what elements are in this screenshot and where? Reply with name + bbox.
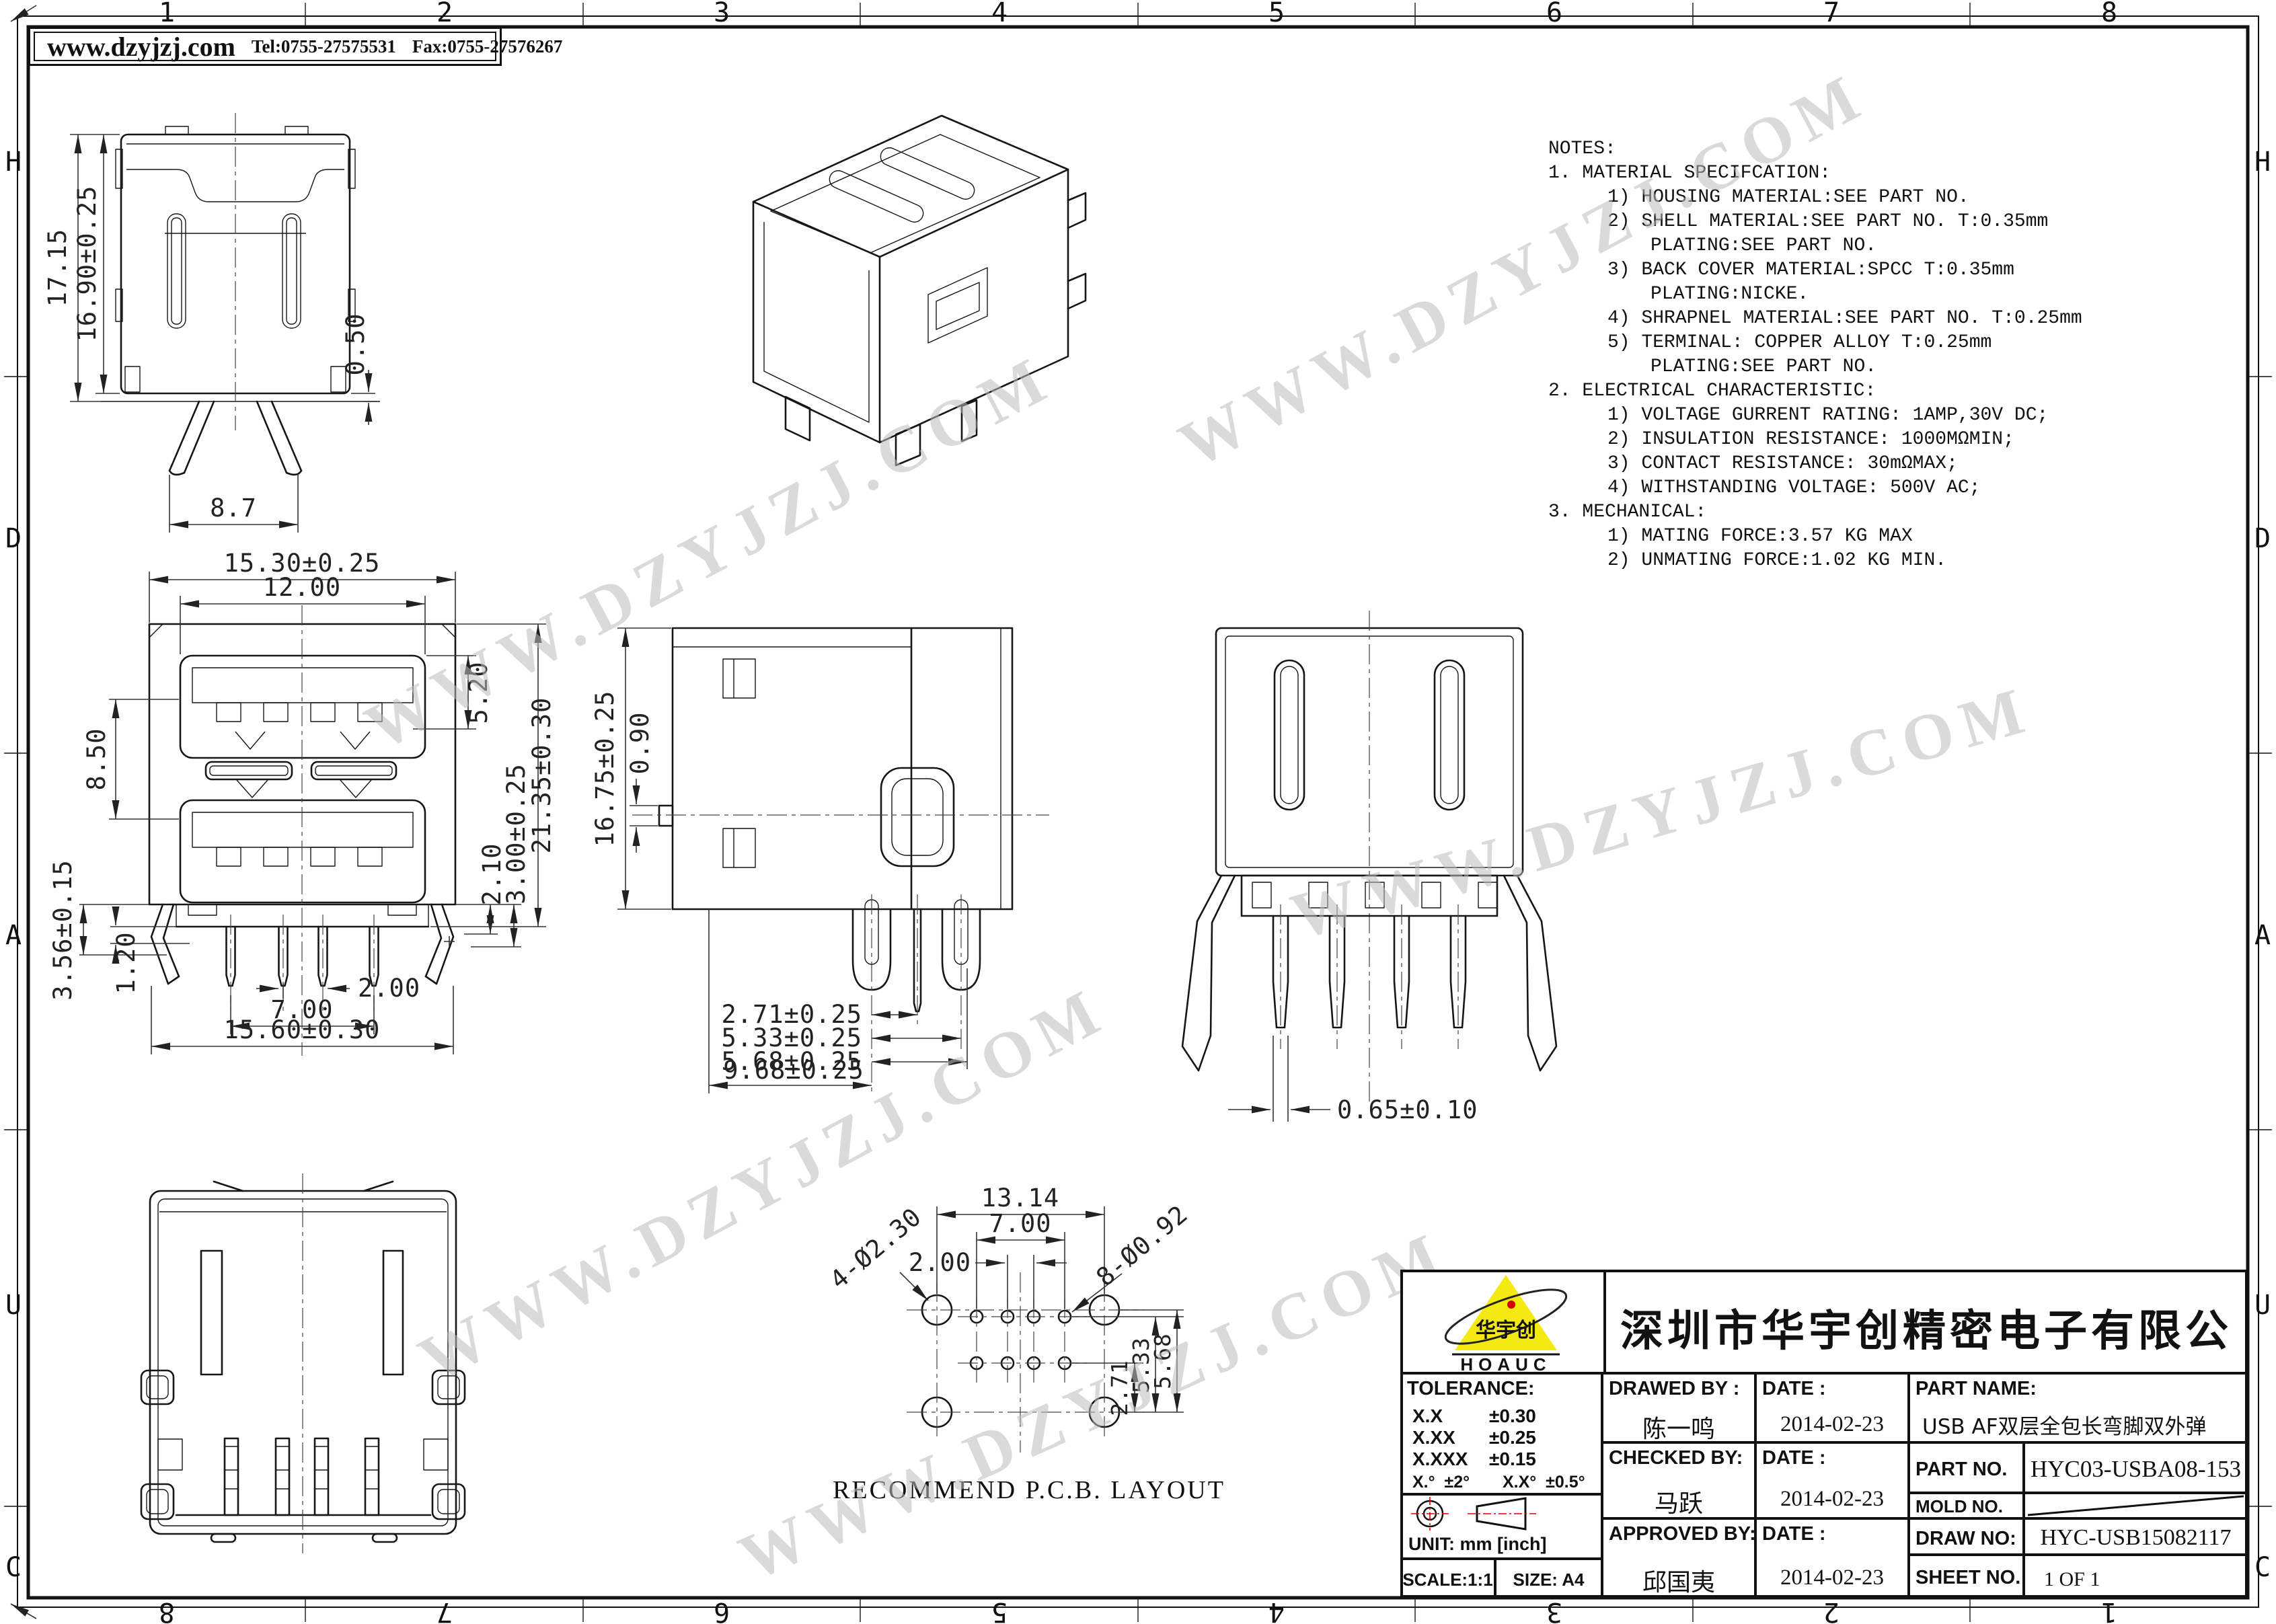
dim-2-00: 2.00 bbox=[358, 974, 420, 1003]
approved-date-cell: DATE : 2014-02-23 bbox=[1755, 1518, 1909, 1598]
date-label: DATE : bbox=[1762, 1378, 1826, 1400]
draw-no-label: DRAW NO: bbox=[1915, 1528, 2016, 1550]
first-angle-projection-icon bbox=[1402, 1496, 1601, 1532]
dim-15-60: 15.60±0.30 bbox=[224, 1015, 381, 1044]
dim-21-35: 21.35±0.30 bbox=[527, 697, 556, 854]
approved-by-name: 邱国夷 bbox=[1603, 1563, 1754, 1598]
view-side: 16.75±0.25 0.90 2.71±0.25 5.33±0.25 5.68… bbox=[591, 628, 1049, 1095]
notes: NOTES: 1. MATERIAL SPECIFCATION: 1) HOUS… bbox=[1548, 137, 2248, 573]
view-pcb-layout: 13.14 7.00 2.00 4-Ø2.30 8-Ø0.92 2.71 5.3… bbox=[825, 1184, 1225, 1504]
unit-cell: UNIT: mm [inch] bbox=[1400, 1494, 1602, 1559]
zone-left: C bbox=[5, 1552, 22, 1583]
blank-slash-icon bbox=[2025, 1494, 2246, 1517]
note-line: PLATING:SEE PART NO. bbox=[1548, 234, 2248, 258]
draw-no-value: HYC-USB15082117 bbox=[2025, 1525, 2246, 1551]
dim-8-7: 8.7 bbox=[210, 494, 257, 523]
note-line: PLATING:NICKE. bbox=[1548, 282, 2248, 307]
checked-by-label: CHECKED BY: bbox=[1609, 1447, 1743, 1469]
website-text: www.dzyjzj.com bbox=[47, 31, 235, 63]
zone-right: D bbox=[2254, 523, 2271, 554]
drawed-date-cell: DATE : 2014-02-23 bbox=[1755, 1373, 1909, 1442]
tol-angle: X.° ±2° bbox=[1412, 1473, 1470, 1492]
header-box: www.dzyjzj.com Tel:0755-27575531 Fax:075… bbox=[28, 27, 502, 66]
dim-0-50: 0.50 bbox=[341, 313, 370, 375]
corner-mark-icon bbox=[11, 5, 36, 22]
dim-5-68: 5.68 bbox=[1149, 1333, 1176, 1389]
note-line: 2) SHELL MATERIAL:SEE PART NO. T:0.35mm bbox=[1548, 210, 2248, 234]
note-line: 4) WITHSTANDING VOLTAGE: 500V AC; bbox=[1548, 476, 2248, 500]
sheet-no-value-cell: 1 OF 1 bbox=[2024, 1555, 2248, 1598]
date-label: DATE : bbox=[1762, 1447, 1826, 1469]
dim-2-00: 2.00 bbox=[909, 1248, 971, 1277]
tol-val: ±0.15 bbox=[1489, 1448, 1536, 1470]
dim-16-90: 16.90±0.25 bbox=[73, 186, 102, 342]
zone-top-4: 4 bbox=[991, 0, 1008, 28]
zone-right: U bbox=[2254, 1290, 2271, 1321]
dim-12-00: 12.00 bbox=[263, 573, 341, 602]
note-line: 3) BACK COVER MATERIAL:SPCC T:0.35mm bbox=[1548, 258, 2248, 282]
part-no-label-cell: PART NO. bbox=[1909, 1442, 2024, 1493]
dim-8-50: 8.50 bbox=[82, 728, 111, 790]
note-line: 2) INSULATION RESISTANCE: 1000MΩMIN; bbox=[1548, 428, 2248, 452]
zone-top-3: 3 bbox=[714, 0, 730, 28]
zone-bottom: 7 bbox=[437, 1596, 453, 1624]
part-no-value: HYC03-USBA08-153 bbox=[2025, 1456, 2246, 1483]
zone-top-6: 6 bbox=[1546, 0, 1562, 28]
note-line: 1) VOLTAGE GURRENT RATING: 1AMP,30V DC; bbox=[1548, 403, 2248, 428]
scale-label: SCALE:1:1 bbox=[1402, 1570, 1494, 1590]
tol-key: X.XX bbox=[1412, 1427, 1455, 1448]
checked-date-cell: DATE : 2014-02-23 bbox=[1755, 1442, 1909, 1518]
sheet-no-label: SHEET NO. bbox=[1915, 1567, 2020, 1589]
zone-right: C bbox=[2254, 1552, 2271, 1583]
zone-bottom: 2 bbox=[1823, 1596, 1839, 1624]
zone-left: U bbox=[5, 1290, 22, 1321]
pcb-caption: RECOMMEND P.C.B. LAYOUT bbox=[833, 1476, 1225, 1504]
approved-by-cell: APPROVED BY: 邱国夷 bbox=[1602, 1518, 1755, 1598]
view-rear: 0.65±0.10 bbox=[1182, 611, 1556, 1124]
dim-9-68: 9.68±0.25 bbox=[723, 1056, 864, 1085]
zone-top-7: 7 bbox=[1823, 0, 1839, 28]
logo-cjk-text: 华宇创 bbox=[1476, 1319, 1536, 1342]
zone-left: A bbox=[5, 920, 22, 951]
zone-top-5: 5 bbox=[1268, 0, 1285, 28]
note-line: 1. MATERIAL SPECIFCATION: bbox=[1548, 161, 2248, 186]
dim-3-00: 3.00±0.25 bbox=[502, 763, 531, 904]
dim-0-65: 0.65±0.10 bbox=[1337, 1095, 1478, 1124]
zone-right: A bbox=[2254, 920, 2271, 951]
zone-bottom: 8 bbox=[159, 1596, 175, 1624]
zone-bottom: 5 bbox=[991, 1596, 1008, 1624]
part-name-label: PART NAME: bbox=[1915, 1378, 2037, 1400]
dim-16-75: 16.75±0.25 bbox=[591, 691, 619, 847]
checked-by-name: 马跃 bbox=[1603, 1484, 1754, 1519]
view-front-mid: 15.30±0.25 12.00 5.20 2.10 3.00±0.25 21.… bbox=[48, 549, 556, 1056]
zone-top-8: 8 bbox=[2101, 0, 2117, 28]
notes-title: NOTES: bbox=[1548, 137, 2248, 161]
note-line: 1) HOUSING MATERIAL:SEE PART NO. bbox=[1548, 186, 2248, 210]
note-line: 4) SHRAPNEL MATERIAL:SEE PART NO. T:0.25… bbox=[1548, 307, 2248, 331]
view-bottom bbox=[141, 1173, 465, 1553]
tol-key: X.XXX bbox=[1412, 1448, 1468, 1470]
size-cell: SIZE: A4 bbox=[1495, 1559, 1602, 1598]
mold-no-label: MOLD NO. bbox=[1915, 1496, 2003, 1517]
company-logo-icon: 华宇创 HOAUC bbox=[1402, 1271, 1603, 1372]
view-front-top: 17.15 16.90±0.25 0.50 8.7 bbox=[43, 113, 380, 533]
drawing-sheet: 1 2 3 4 5 6 7 8 8 7 6 5 4 3 2 1 H D A U … bbox=[0, 0, 2276, 1624]
zone-left: D bbox=[5, 523, 22, 554]
logo-latin-text: HOAUC bbox=[1460, 1354, 1551, 1372]
mold-no-value-cell bbox=[2024, 1493, 2248, 1518]
zone-bottom: 6 bbox=[714, 1596, 730, 1624]
drawed-by-name: 陈一鸣 bbox=[1603, 1409, 1754, 1444]
tolerance-label: TOLERANCE: bbox=[1407, 1378, 1535, 1400]
approved-by-label: APPROVED BY: bbox=[1609, 1523, 1756, 1545]
dim-7-00: 7.00 bbox=[989, 1209, 1051, 1238]
zone-bottom: 3 bbox=[1546, 1596, 1562, 1624]
note-line: 2) UNMATING FORCE:1.02 KG MIN. bbox=[1548, 549, 2248, 573]
dim-5-20: 5.20 bbox=[464, 661, 493, 724]
scale-cell: SCALE:1:1 bbox=[1400, 1559, 1495, 1598]
tol-key: X.X bbox=[1412, 1405, 1443, 1427]
company-cell: 深圳市华宇创精密电子有限公司 bbox=[1605, 1270, 2248, 1373]
part-no-value-cell: HYC03-USBA08-153 bbox=[2024, 1442, 2248, 1493]
tol-val: ±0.30 bbox=[1489, 1405, 1536, 1427]
checked-by-cell: CHECKED BY: 马跃 bbox=[1602, 1442, 1755, 1518]
logo-red-dot bbox=[1507, 1301, 1515, 1309]
approved-date: 2014-02-23 bbox=[1757, 1565, 1907, 1590]
zone-bottom: 4 bbox=[1268, 1596, 1285, 1624]
part-name-value: USB AF双层全包长弯脚双外弹 bbox=[1922, 1409, 2207, 1440]
unit-label: UNIT: mm [inch] bbox=[1408, 1534, 1547, 1555]
corner-mark-icon bbox=[11, 1604, 36, 1619]
mold-no-label-cell: MOLD NO. bbox=[1909, 1493, 2024, 1518]
tel-text: Tel:0755-27575531 bbox=[252, 36, 396, 57]
note-line: PLATING:SEE PART NO. bbox=[1548, 355, 2248, 379]
zone-top-2: 2 bbox=[437, 0, 453, 28]
draw-no-value-cell: HYC-USB15082117 bbox=[2024, 1518, 2248, 1555]
part-name-cell: PART NAME: USB AF双层全包长弯脚双外弹 bbox=[1909, 1373, 2248, 1442]
dim-3-56: 3.56±0.15 bbox=[48, 859, 77, 1000]
checked-date: 2014-02-23 bbox=[1757, 1487, 1907, 1512]
drawed-by-label: DRAWED BY : bbox=[1609, 1378, 1739, 1400]
dim-1-20: 1.20 bbox=[112, 931, 141, 994]
label-pin-hole: 8-Ø0.92 bbox=[1091, 1200, 1193, 1292]
dim-13-14: 13.14 bbox=[981, 1184, 1059, 1212]
fax-text: Fax:0755-27576267 bbox=[412, 36, 562, 57]
tol-angle: X.X° ±0.5° bbox=[1503, 1473, 1585, 1492]
tol-val: ±0.25 bbox=[1489, 1427, 1536, 1448]
note-line: 2. ELECTRICAL CHARACTERISTIC: bbox=[1548, 379, 2248, 403]
note-line: 5) TERMINAL: COPPER ALLOY T:0.25mm bbox=[1548, 331, 2248, 355]
note-line: 1) MATING FORCE:3.57 KG MAX bbox=[1548, 525, 2248, 549]
draw-no-label-cell: DRAW NO: bbox=[1909, 1518, 2024, 1555]
title-block: 华宇创 HOAUC 深圳市华宇创精密电子有限公司 TOLERANCE: X.X … bbox=[1400, 1270, 2248, 1598]
date-label: DATE : bbox=[1762, 1523, 1826, 1545]
note-line: 3. MECHANICAL: bbox=[1548, 500, 2248, 525]
zone-right: H bbox=[2254, 147, 2271, 178]
size-label: SIZE: A4 bbox=[1496, 1570, 1601, 1590]
sheet-no-label-cell: SHEET NO. bbox=[1909, 1555, 2024, 1598]
note-line: 3) CONTACT RESISTANCE: 30mΩMAX; bbox=[1548, 452, 2248, 476]
logo-cell: 华宇创 HOAUC bbox=[1400, 1270, 1605, 1373]
drawed-date: 2014-02-23 bbox=[1757, 1412, 1907, 1437]
sheet-no-value: 1 OF 1 bbox=[2044, 1568, 2100, 1591]
zone-bottom: 1 bbox=[2101, 1596, 2117, 1624]
view-isometric bbox=[753, 116, 1086, 465]
zone-left: H bbox=[5, 147, 22, 178]
zone-top-1: 1 bbox=[159, 0, 175, 28]
tolerance-cell: TOLERANCE: X.X ±0.30 X.XX ±0.25 X.XXX ±0… bbox=[1400, 1373, 1602, 1494]
dim-17-15: 17.15 bbox=[43, 229, 72, 307]
part-no-label: PART NO. bbox=[1915, 1459, 2007, 1481]
dim-0-90: 0.90 bbox=[625, 711, 654, 774]
drawed-by-cell: DRAWED BY : 陈一鸣 bbox=[1602, 1373, 1755, 1442]
